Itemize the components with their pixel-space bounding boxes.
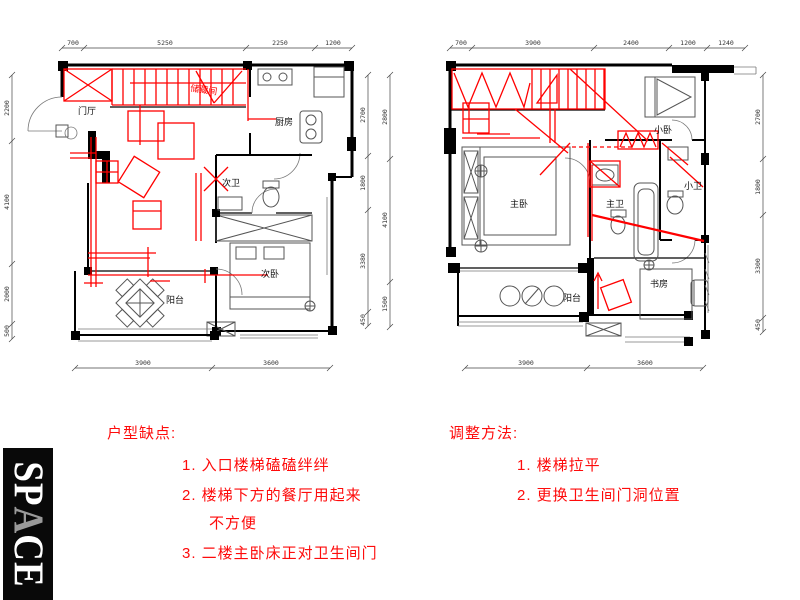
dim-label: 1800 — [359, 175, 367, 191]
right-floor-plan: 700 3900 2400 1200 1240 2700 1800 3300 4… — [420, 25, 800, 405]
defect-item-2-cont: 不方便 — [209, 512, 257, 533]
defects-title: 户型缺点: — [107, 422, 176, 443]
dim-label: 3380 — [359, 253, 367, 269]
left-plan-red-annotations — [64, 69, 276, 287]
logo-letter: A — [7, 507, 50, 534]
left-floor-plan: 700 5250 2250 1200 2200 4100 2000 500 27… — [0, 25, 420, 405]
room-label-study: 书房 — [650, 278, 668, 289]
right-plan-walls — [444, 61, 756, 346]
dim-label: 2000 — [3, 286, 11, 302]
left-plan-walls — [28, 61, 356, 341]
dim-label: 1200 — [680, 39, 696, 47]
room-label-small-bedroom: 小卧 — [654, 124, 672, 135]
logo-letter: S — [7, 461, 50, 482]
logo-letter: E — [7, 562, 50, 587]
dim-label: 4100 — [381, 212, 389, 228]
floorplan-comparison-sheet: 700 5250 2250 1200 2200 4100 2000 500 27… — [0, 0, 800, 600]
defect-item-1: 1. 入口楼梯磕磕绊绊 — [182, 454, 330, 475]
room-label-balcony-left: 阳台 — [166, 294, 184, 305]
dim-label: 2400 — [623, 39, 639, 47]
room-label-balcony-right: 阳台 — [563, 292, 581, 303]
left-plan-furniture — [103, 67, 344, 340]
dim-label: 1200 — [325, 39, 341, 47]
room-label-master-bath: 主卫 — [606, 198, 624, 209]
room-label-bath2: 次卫 — [222, 177, 240, 188]
dim-label: 3900 — [135, 359, 151, 367]
right-plan-red-annotations — [452, 69, 704, 310]
dim-label: 4100 — [3, 194, 11, 210]
dim-label: 1800 — [754, 179, 762, 195]
dim-label: 2700 — [359, 107, 367, 123]
dim-label: 700 — [455, 39, 467, 47]
dim-label: 1240 — [718, 39, 734, 47]
defect-item-2: 2. 楼梯下方的餐厅用起来 — [182, 484, 362, 505]
dim-label: 500 — [3, 325, 11, 337]
dim-label: 1500 — [381, 296, 389, 312]
dim-label: 3300 — [754, 258, 762, 274]
dim-label: 700 — [67, 39, 79, 47]
dim-label: 2250 — [272, 39, 288, 47]
adjustments-title: 调整方法: — [449, 422, 518, 443]
dim-label: 3900 — [518, 359, 534, 367]
space-logo: S P A C E — [3, 448, 53, 600]
logo-letter: P — [7, 483, 50, 506]
dim-label: 3900 — [525, 39, 541, 47]
room-label-kitchen: 厨房 — [275, 116, 293, 127]
dim-label: 450 — [754, 319, 762, 331]
dim-label: 3600 — [637, 359, 653, 367]
right-plan-furniture — [462, 77, 708, 319]
dim-label: 5250 — [157, 39, 173, 47]
adjustment-item-1: 1. 楼梯拉平 — [517, 454, 601, 475]
room-label-bedroom2: 次卧 — [261, 268, 279, 279]
dim-label: 3600 — [263, 359, 279, 367]
defect-item-3: 3. 二楼主卧床正对卫生间门 — [182, 542, 378, 563]
space-logo-text: S P A C E — [3, 448, 53, 600]
adjustment-item-2: 2. 更换卫生间门洞位置 — [517, 484, 681, 505]
dim-label: 2700 — [754, 109, 762, 125]
room-label-storage: 储藏间 — [190, 82, 218, 97]
logo-letter: C — [7, 534, 50, 561]
dim-label: 2200 — [3, 100, 11, 116]
dim-label: 2800 — [381, 109, 389, 125]
room-label-small-bath: 小卫 — [684, 181, 702, 191]
dim-label: 450 — [359, 314, 367, 326]
room-label-master-bedroom: 主卧 — [510, 198, 528, 209]
room-label-entry: 门厅 — [78, 105, 96, 116]
